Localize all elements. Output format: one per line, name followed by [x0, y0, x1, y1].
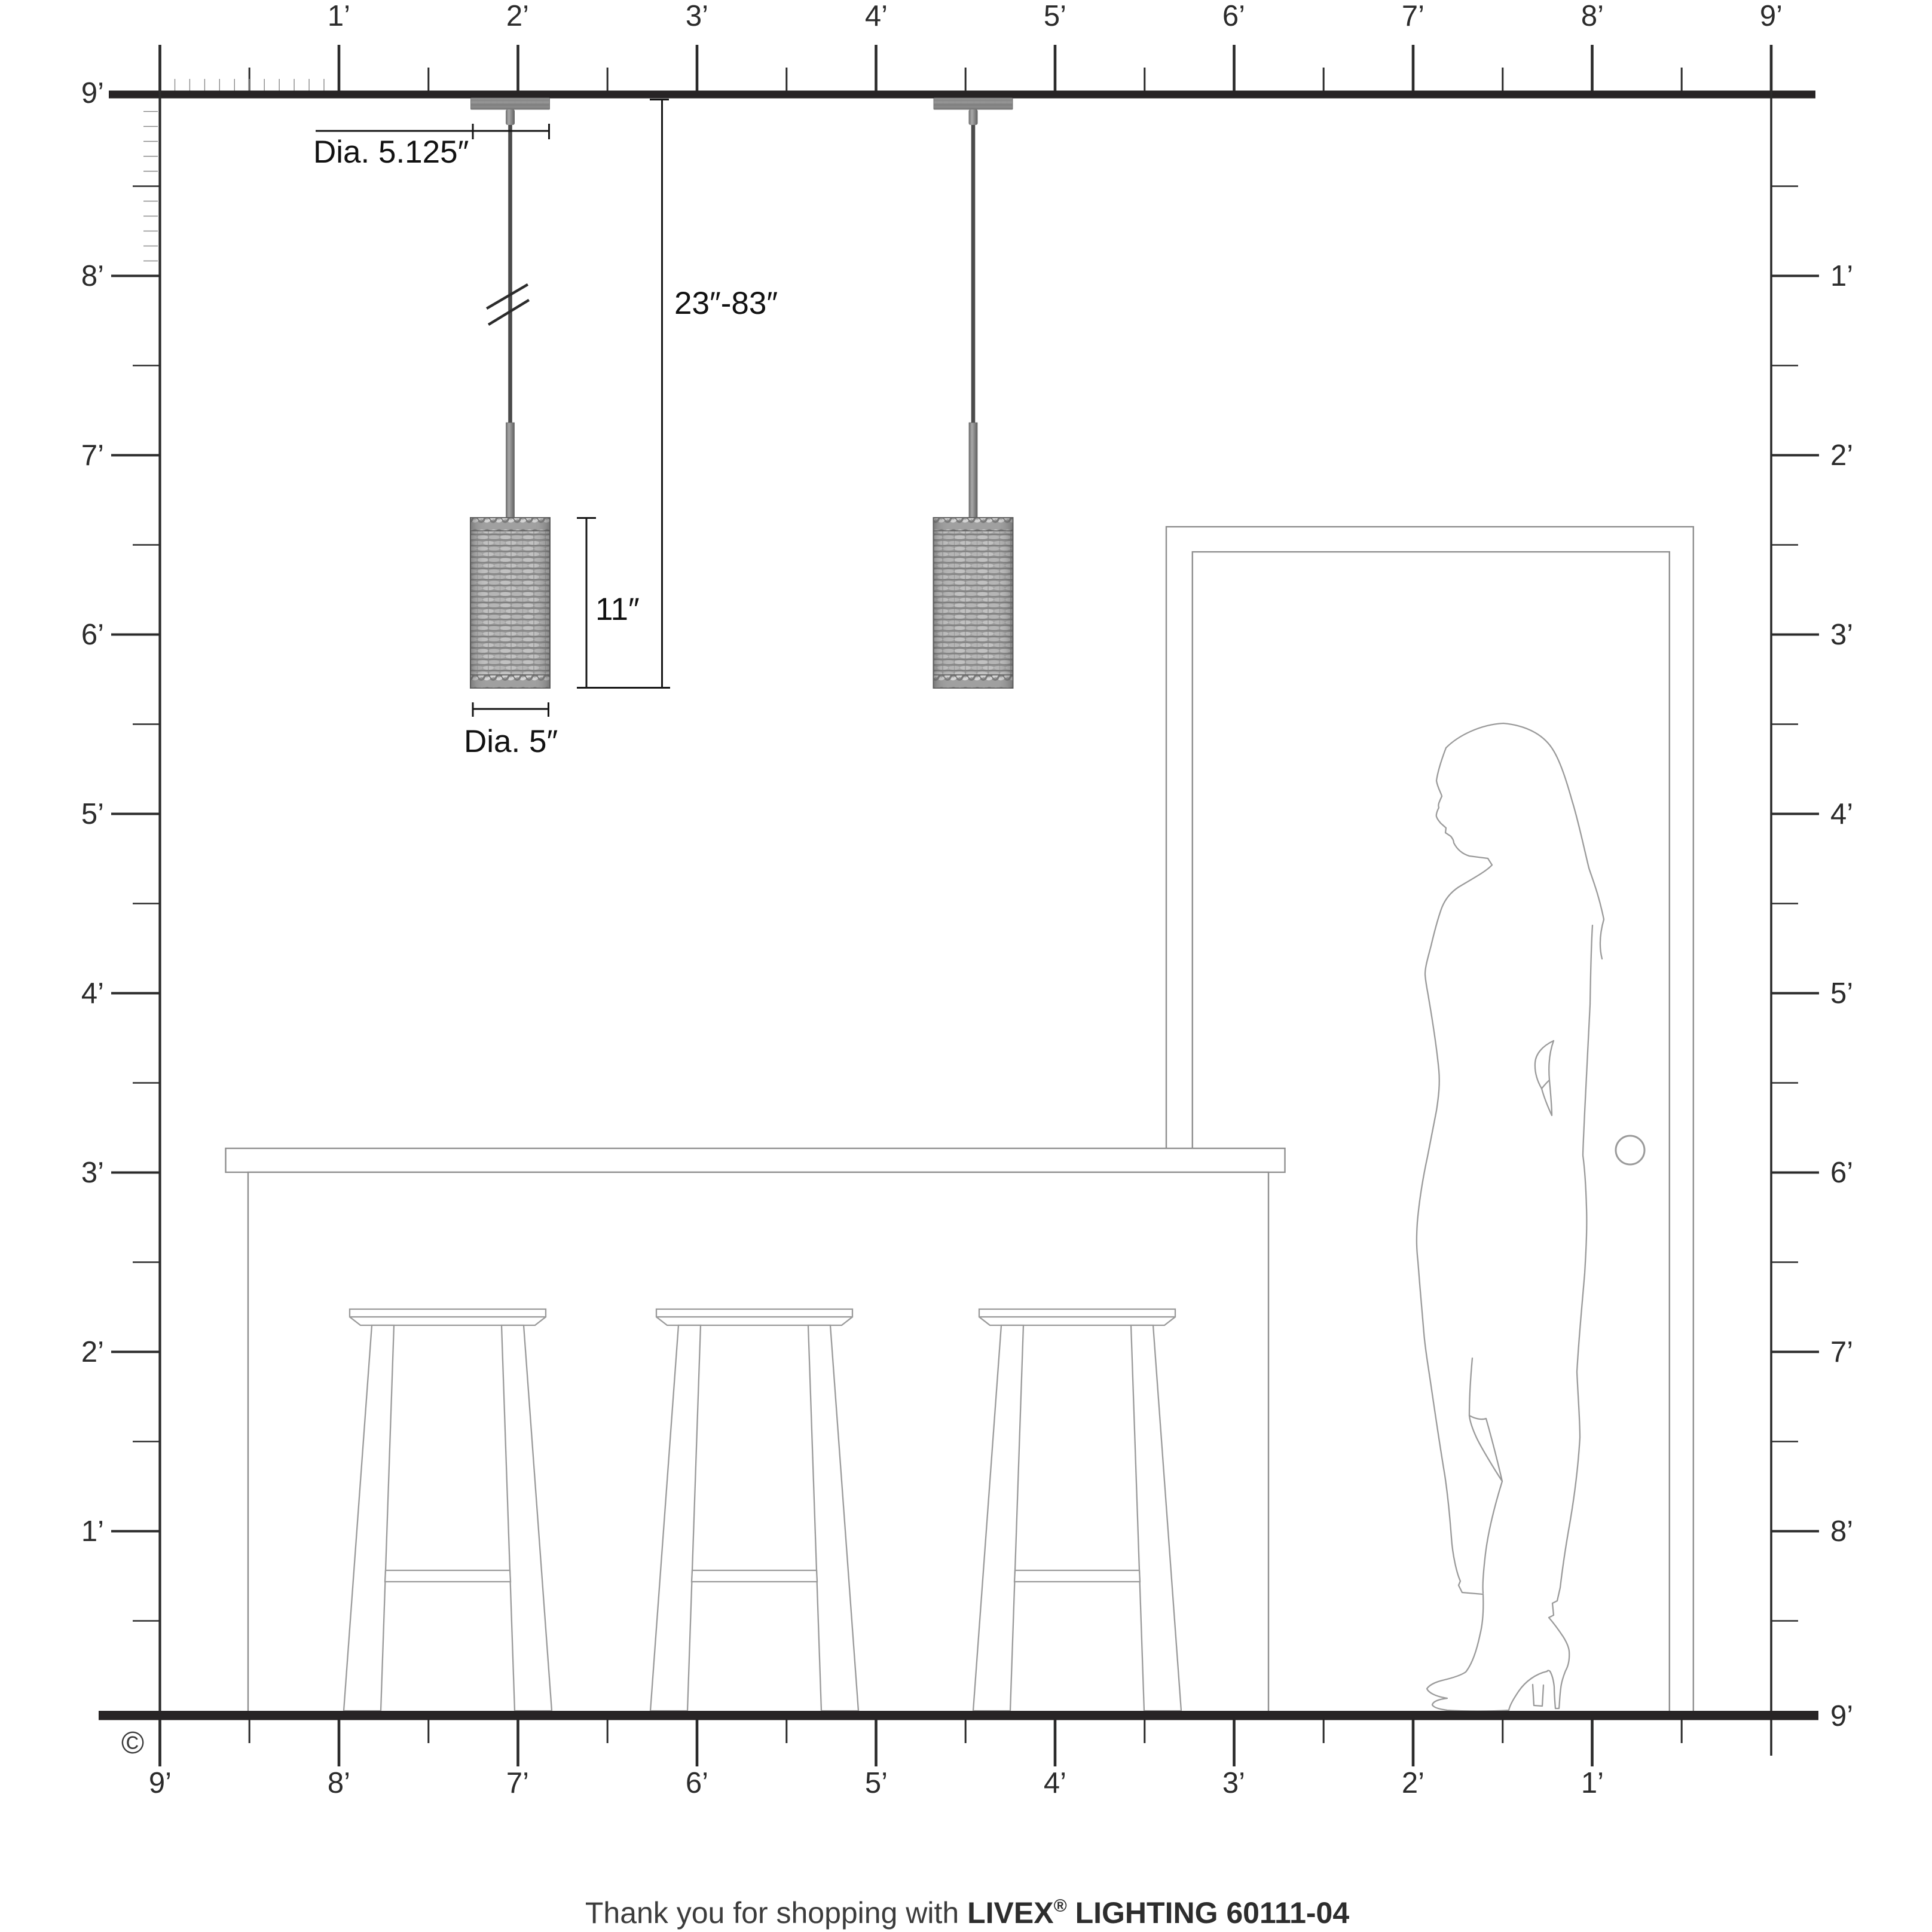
svg-text:23″-83″: 23″-83″	[674, 286, 778, 321]
svg-text:1’: 1’	[1830, 260, 1853, 292]
svg-text:2’: 2’	[1830, 439, 1853, 472]
svg-text:4’: 4’	[1830, 798, 1853, 830]
svg-text:2’: 2’	[81, 1336, 104, 1368]
svg-text:3’: 3’	[1830, 619, 1853, 651]
svg-text:7’: 7’	[1830, 1336, 1853, 1368]
svg-text:3’: 3’	[1222, 1767, 1245, 1799]
svg-text:3’: 3’	[686, 0, 708, 32]
svg-text:9’: 9’	[149, 1767, 172, 1799]
svg-text:8’: 8’	[1830, 1515, 1853, 1548]
svg-text:©: ©	[121, 1726, 144, 1760]
svg-text:Dia. 5″: Dia. 5″	[464, 724, 558, 759]
svg-text:6’: 6’	[686, 1767, 708, 1799]
svg-text:1’: 1’	[1581, 1767, 1604, 1799]
svg-text:5’: 5’	[865, 1767, 888, 1799]
svg-text:9’: 9’	[1760, 0, 1783, 32]
svg-text:8’: 8’	[1581, 0, 1604, 32]
svg-text:7’: 7’	[506, 1767, 529, 1799]
svg-text:4’: 4’	[865, 0, 888, 32]
svg-text:6’: 6’	[1222, 0, 1245, 32]
svg-text:Dia. 5.125″: Dia. 5.125″	[313, 134, 469, 170]
svg-text:6’: 6’	[81, 619, 104, 651]
svg-text:5’: 5’	[81, 798, 104, 830]
svg-text:4’: 4’	[1044, 1767, 1066, 1799]
svg-text:7’: 7’	[81, 439, 104, 472]
svg-text:4’: 4’	[81, 977, 104, 1010]
svg-text:7’: 7’	[1402, 0, 1424, 32]
svg-text:8’: 8’	[81, 260, 104, 292]
svg-text:9’: 9’	[81, 77, 104, 109]
svg-text:9’: 9’	[1830, 1700, 1853, 1732]
svg-text:6’: 6’	[1830, 1157, 1853, 1189]
svg-text:8’: 8’	[328, 1767, 350, 1799]
svg-text:5’: 5’	[1830, 977, 1853, 1010]
svg-text:1’: 1’	[81, 1515, 104, 1548]
svg-text:1’: 1’	[328, 0, 350, 32]
svg-text:3’: 3’	[81, 1157, 104, 1189]
svg-text:2’: 2’	[506, 0, 529, 32]
svg-text:5’: 5’	[1044, 0, 1066, 32]
svg-text:Thank you for shopping with LI: Thank you for shopping with LIVEX® LIGHT…	[585, 1896, 1349, 1930]
svg-text:2’: 2’	[1402, 1767, 1424, 1799]
svg-text:11″: 11″	[595, 592, 640, 627]
